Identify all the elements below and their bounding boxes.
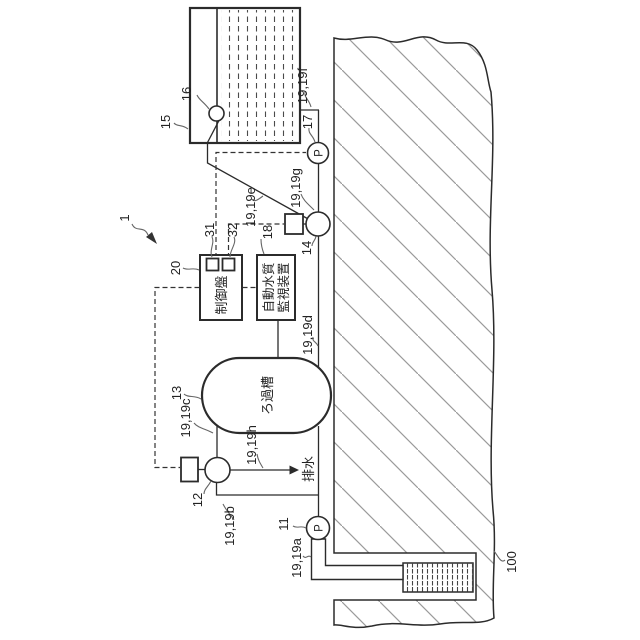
pipe-tee-riser — [217, 483, 319, 496]
well-screen-slits — [403, 563, 473, 592]
water-fill — [221, 10, 298, 141]
pump-17: P — [308, 143, 329, 164]
ref-19e: 19,19e — [243, 187, 258, 227]
filter-tank-label: ろ過槽 — [260, 376, 275, 415]
control-panel-20: 制御盤 — [200, 255, 242, 320]
pump-11: P — [307, 517, 330, 540]
ref-18: 18 — [260, 225, 275, 239]
ref-19b: 19,19b — [222, 506, 237, 546]
ref-100: 100 — [504, 551, 519, 573]
monitor-label-line2: 監視装置 — [276, 262, 291, 312]
ref-19f: 19,19f — [295, 68, 310, 105]
leader-11 — [293, 526, 306, 528]
ref-19g: 19,19g — [288, 168, 303, 208]
filter-tank-13: ろ過槽 — [202, 358, 331, 433]
patent-figure: ろ過槽 制御盤 自動水質 監視装置 P — [0, 0, 640, 640]
valve-14 — [285, 212, 330, 236]
leader-1-arrow — [132, 224, 148, 235]
patent-figure-page: ろ過槽 制御盤 自動水質 監視装置 P — [0, 0, 640, 640]
ref-19h: 19,19h — [244, 425, 259, 465]
ref-12: 12 — [190, 493, 205, 507]
control-panel-label: 制御盤 — [214, 275, 229, 314]
ground-hatch — [334, 37, 494, 628]
valve-12-actuator — [181, 458, 198, 482]
ref-11: 11 — [276, 517, 291, 531]
storage-tank-15 — [190, 8, 300, 143]
ref-15: 15 — [158, 115, 173, 129]
ref-14: 14 — [299, 241, 314, 255]
lamp-31 — [207, 259, 219, 271]
pump-17-symbol: P — [314, 149, 326, 157]
drain-label: 排水 — [301, 456, 316, 482]
valve-12-body — [205, 458, 230, 483]
lamp-32 — [223, 259, 235, 271]
ref-20: 20 — [168, 261, 183, 275]
pump-11-symbol: P — [314, 524, 326, 532]
ref-19c: 19,19c — [178, 398, 193, 438]
leader-12 — [204, 481, 211, 494]
ref-13: 13 — [169, 386, 184, 400]
ref-16: 16 — [179, 87, 194, 101]
ref-19a: 19,19a — [289, 537, 304, 578]
drain-arrowhead — [290, 466, 300, 475]
leader-20 — [183, 268, 199, 270]
monitor-label-line1: 自動水質 — [261, 262, 276, 312]
leader-13 — [184, 394, 201, 399]
ref-17: 17 — [300, 115, 315, 129]
monitor-18: 自動水質 監視装置 — [257, 255, 295, 320]
leader-15 — [174, 123, 188, 129]
float-16 — [209, 106, 224, 121]
valve-14-actuator — [285, 214, 303, 234]
leader-19a — [303, 556, 311, 557]
leader-18 — [261, 239, 264, 254]
ref-1: 1 — [117, 214, 132, 221]
leader-19c — [194, 423, 213, 433]
ref-32: 32 — [225, 223, 240, 237]
figure-rotated-group: ろ過槽 制御盤 自動水質 監視装置 P — [117, 8, 519, 627]
valve-12 — [181, 458, 230, 483]
ref-31: 31 — [202, 223, 217, 237]
valve-14-body — [306, 212, 330, 236]
ctrl-panel-to-valve12 — [155, 288, 200, 468]
ref-19d: 19,19d — [300, 315, 315, 355]
